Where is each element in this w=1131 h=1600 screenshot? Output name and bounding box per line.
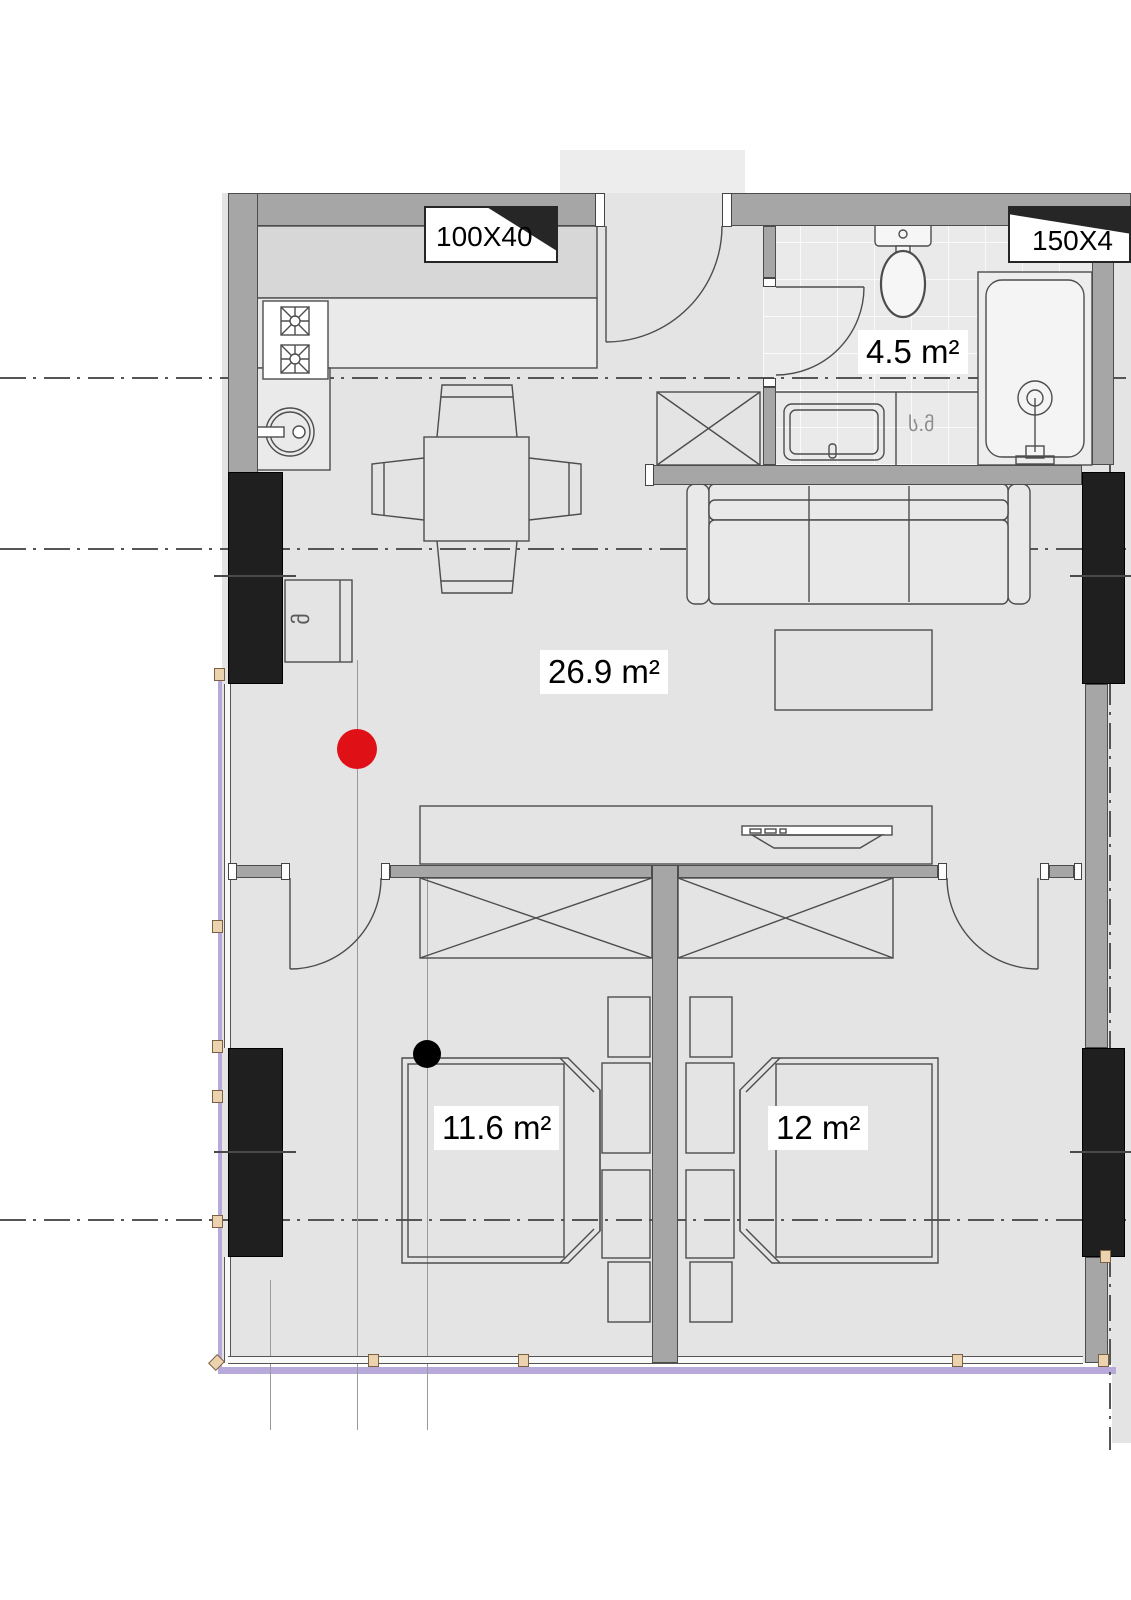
bedroom-right-door: [947, 878, 1038, 969]
window-tag-kitchen-text: 100X40: [436, 221, 533, 253]
wall-partition-a: [236, 865, 282, 878]
boundary-marker: [212, 1090, 223, 1103]
column-tick-3: [214, 1151, 296, 1153]
wall-bathroom-bottom: [645, 465, 1082, 485]
bed-left: [402, 997, 650, 1322]
tv-icon: [742, 826, 892, 848]
toilet: [875, 222, 931, 317]
entry-closet: [657, 392, 760, 465]
window-tag-bathroom: 150X4: [1008, 206, 1131, 263]
wall-bathroom-left-b: [763, 387, 776, 465]
bed-right: [686, 997, 938, 1322]
bathroom-door: [776, 287, 864, 375]
jamb-entrance-left: [595, 193, 605, 227]
sofa: [687, 484, 1030, 604]
wall-partition-d: [1049, 865, 1074, 878]
black-dot-marker[interactable]: [413, 1040, 441, 1068]
boundary-marker: [952, 1354, 963, 1367]
jamb-partition-end-left: [228, 863, 237, 880]
jamb-entrance-right: [722, 193, 732, 227]
boundary-marker: [212, 1215, 223, 1228]
window-tag-bathroom-text: 150X4: [1032, 225, 1113, 257]
column-tick-4: [1070, 1151, 1131, 1153]
jamb-bathwall-end: [645, 464, 654, 486]
boundary-marker: [1098, 1354, 1109, 1367]
jamb-br2-left: [938, 863, 947, 880]
tv-console: [420, 806, 932, 864]
wall-bathroom-left-a: [763, 226, 776, 278]
wall-partition-b: [390, 865, 652, 878]
washing-machine-label: ს.მ: [908, 412, 934, 437]
column-tick-1: [214, 575, 296, 577]
jamb-br1-right: [381, 863, 390, 880]
area-label-bathroom: 4.5 m²: [858, 330, 968, 374]
wardrobe-left: [420, 878, 652, 958]
entrance-door: [606, 226, 722, 342]
boundary-marker: [214, 668, 225, 681]
bathroom-vanity: [763, 392, 978, 465]
window-tag-kitchen: 100X40: [424, 206, 558, 263]
floor-plan-canvas: 100X40 150X4 26.9 m² 4.5 m² 11.6 m² 12 m…: [0, 0, 1131, 1600]
wall-right-low: [1085, 1257, 1108, 1363]
wall-partition-c: [678, 865, 938, 878]
jamb-partition-end-right: [1074, 863, 1082, 880]
red-dot-marker[interactable]: [337, 729, 377, 769]
boundary-marker: [1100, 1250, 1111, 1263]
area-label-bedroom-left: 11.6 m²: [434, 1106, 559, 1150]
bedroom-left-door: [290, 878, 381, 969]
bathtub-shower: [978, 272, 1092, 465]
column-tick-2: [1070, 575, 1131, 577]
stove: [263, 301, 328, 379]
boundary-marker: [212, 1040, 223, 1053]
jamb-br1-left: [281, 863, 290, 880]
wall-right-mid: [1085, 684, 1108, 1048]
column-right-upper: [1082, 472, 1125, 684]
burner-icon: [281, 307, 309, 335]
jamb-br2-right: [1040, 863, 1049, 880]
jamb-bath-top: [763, 278, 776, 287]
wardrobe-right: [678, 878, 893, 958]
wall-between-bedrooms: [652, 865, 678, 1363]
boundary-marker: [212, 920, 223, 933]
wall-left-upper: [228, 193, 258, 473]
dining-table-set: [372, 385, 581, 593]
boundary-marker: [368, 1354, 379, 1367]
burner-icon: [281, 345, 309, 373]
boundary-marker: [518, 1354, 529, 1367]
wall-right-bath: [1092, 228, 1114, 465]
boiler-label: მ: [289, 613, 315, 625]
coffee-table: [775, 630, 932, 710]
area-label-living: 26.9 m²: [540, 650, 668, 694]
jamb-bath-bottom: [763, 378, 776, 387]
window-wall-left-lower: [224, 1257, 231, 1363]
area-label-bedroom-right: 12 m²: [768, 1106, 868, 1150]
column-left-upper: [228, 472, 283, 684]
